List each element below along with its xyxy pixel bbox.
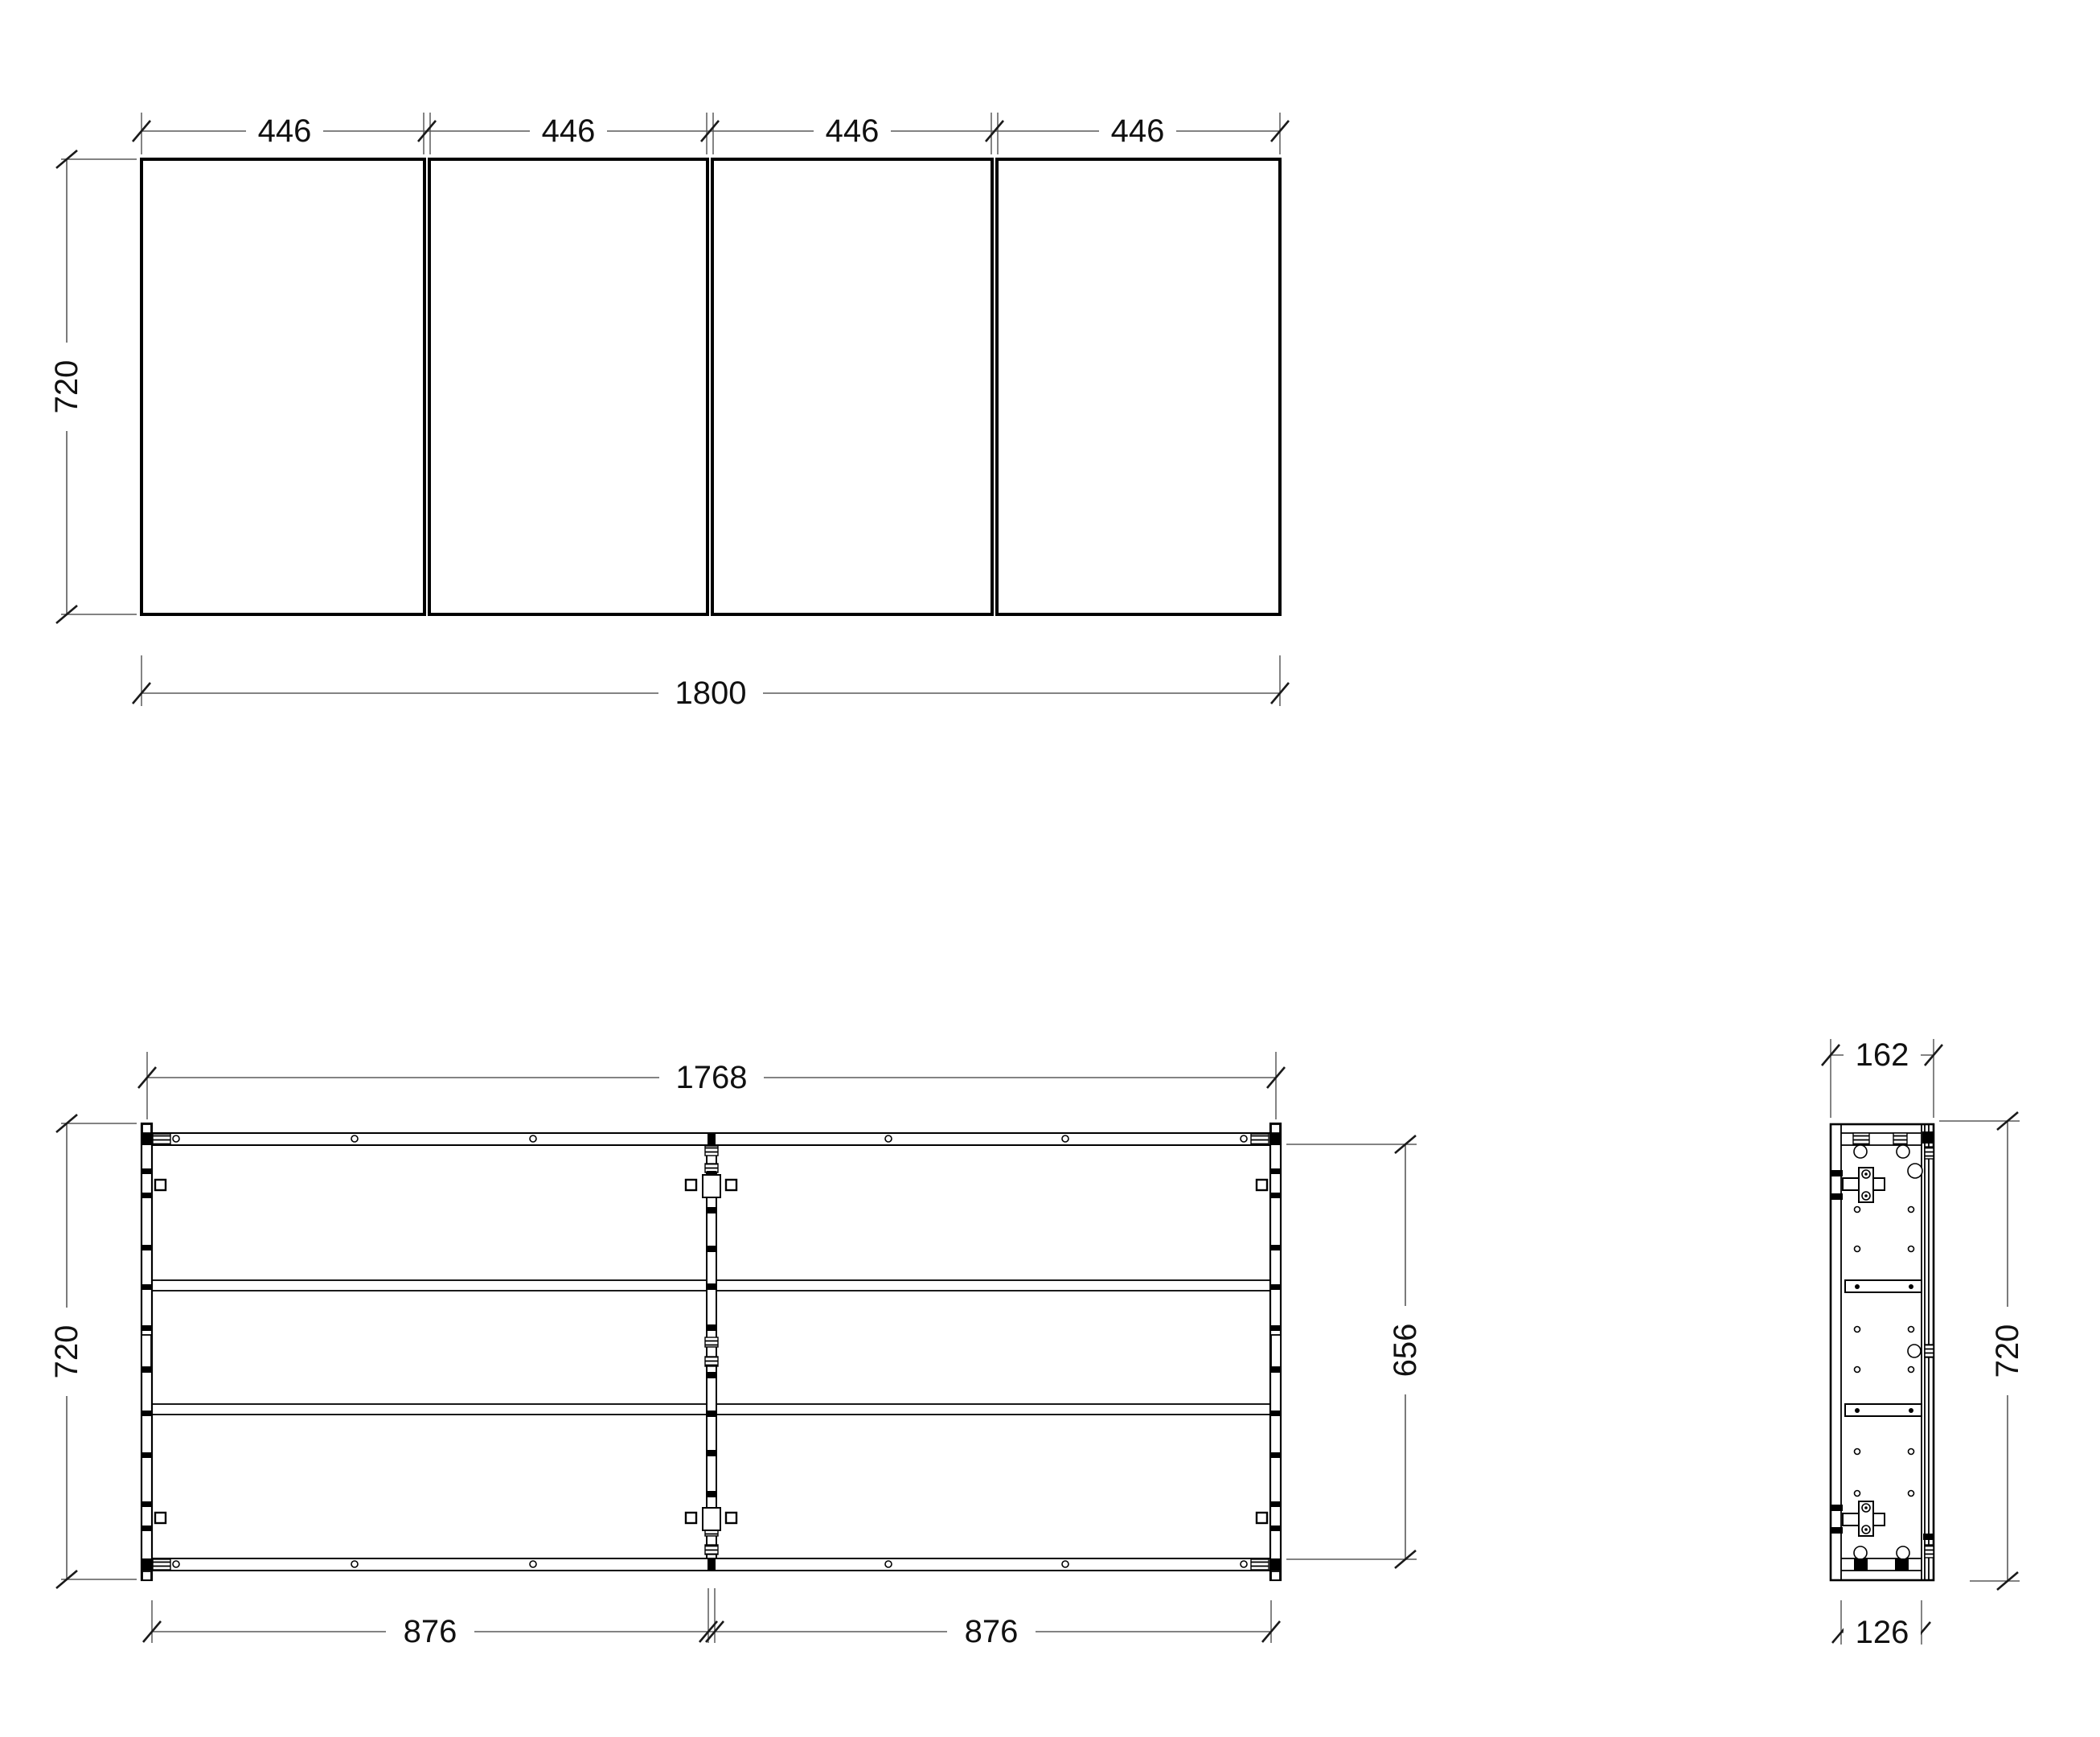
dim-door-width-2: 446 <box>542 113 596 149</box>
dim-side-body-depth-label: 126 <box>1856 1615 1909 1650</box>
side-mid-bracket <box>1908 1345 1934 1357</box>
dim-front-total-width-label: 1800 <box>675 675 747 711</box>
dim-carcass-width-label: 1768 <box>676 1060 748 1095</box>
dim-compartment-2-label: 876 <box>965 1614 1019 1649</box>
dim-door-width-3: 446 <box>826 113 880 149</box>
dim-front-total-width: 1800 <box>133 655 1289 711</box>
carcass-view: 1768 720 656 <box>48 1052 1424 1649</box>
side-top-wall-bracket <box>1831 1168 1885 1202</box>
shelf-right-upper <box>716 1280 1270 1291</box>
shelf-left-lower <box>152 1404 707 1415</box>
front-view: 446 446 446 446 720 1800 <box>48 113 1289 711</box>
hinge-cup <box>1854 1145 1867 1158</box>
dim-compartment-1-label: 876 <box>404 1614 457 1649</box>
dim-side-depth: 162 <box>1822 1037 1942 1118</box>
dim-carcass-width: 1768 <box>138 1052 1285 1119</box>
dim-carcass-height-label: 720 <box>49 1325 84 1379</box>
dim-carcass-interior-height: 656 <box>1286 1135 1424 1568</box>
dim-door-widths: 446 446 446 446 <box>133 113 1289 154</box>
side-view: 162 720 126 <box>1822 1037 2026 1650</box>
dim-side-depth-label: 162 <box>1856 1037 1909 1073</box>
dim-side-height: 720 <box>1939 1112 2026 1590</box>
door-panel-2 <box>429 159 708 614</box>
door-panel-3 <box>712 159 992 614</box>
door-panel-4 <box>997 159 1280 614</box>
dim-front-height-label: 720 <box>49 360 84 414</box>
dim-door-width-4: 446 <box>1111 113 1165 149</box>
side-bottom-wall-bracket <box>1831 1501 1885 1536</box>
dim-carcass-height: 720 <box>48 1115 137 1588</box>
hinge-cup <box>1854 1546 1867 1559</box>
dim-door-width-1: 446 <box>258 113 312 149</box>
drawing-sheet: 446 446 446 446 720 1800 <box>0 0 2100 1737</box>
shelf-left-upper <box>152 1280 707 1291</box>
dim-carcass-interior-height-label: 656 <box>1388 1324 1423 1378</box>
hinge-cup <box>1897 1546 1909 1559</box>
shelf-right-lower <box>716 1404 1270 1415</box>
dim-compartments: 876 876 <box>143 1588 1280 1649</box>
dim-front-height: 720 <box>48 150 137 623</box>
side-pin-holes <box>1855 1207 1914 1497</box>
door-panel-1 <box>142 159 425 614</box>
dim-side-height-label: 720 <box>1990 1324 2025 1378</box>
hinge-cup <box>1897 1145 1909 1158</box>
dim-side-body-depth: 126 <box>1832 1600 1930 1650</box>
